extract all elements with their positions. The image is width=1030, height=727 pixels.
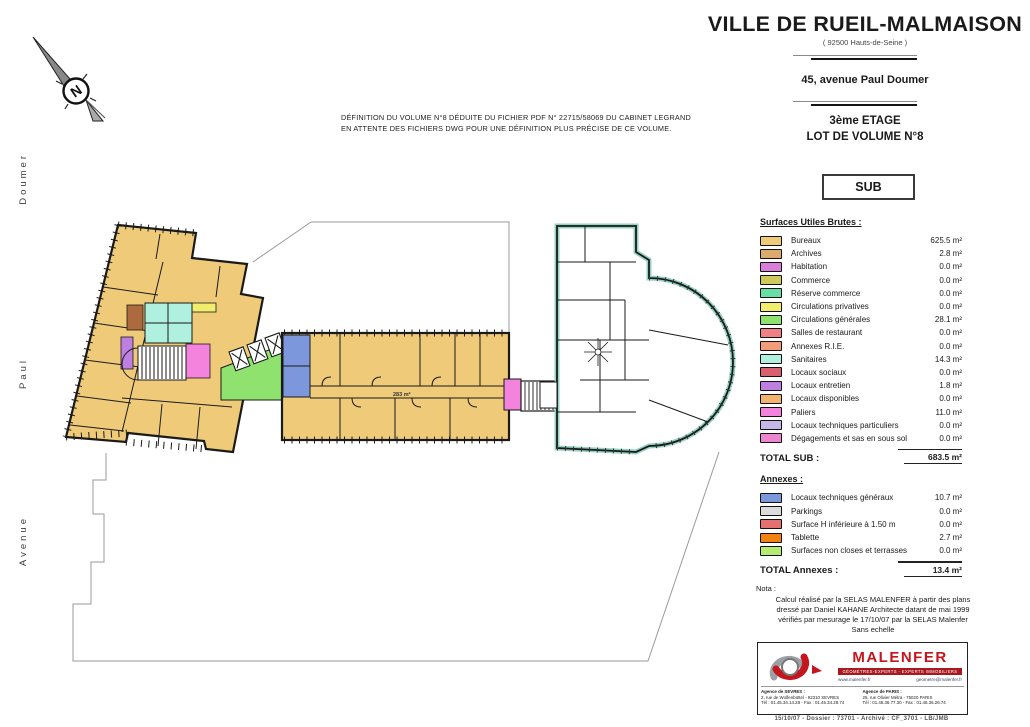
legend-item-value: 0.0 m² <box>904 394 962 403</box>
legend-swatch <box>760 367 782 377</box>
legend-item-label: Surface H inférieure à 1.50 m <box>782 520 904 529</box>
total-sub-label: TOTAL SUB : <box>760 453 904 464</box>
legend-item-value: 0.0 m² <box>904 520 962 529</box>
firm-tagline: GÉOMÈTRES-EXPERTS - EXPERTS IMMOBILIERS <box>838 668 962 675</box>
legend-row: Locaux disponibles 0.0 m² <box>760 392 962 405</box>
total-sub-value: 683.5 m² <box>904 452 962 464</box>
legend-item-value: 0.0 m² <box>907 434 962 443</box>
legend-swatch <box>760 249 782 259</box>
legend-row: Salles de restaurant 0.0 m² <box>760 326 962 339</box>
street-label-doumer: Doumer <box>18 153 36 205</box>
legend-item-value: 2.7 m² <box>904 533 962 542</box>
legend-item-label: Bureaux <box>782 236 904 245</box>
legend-item-label: Habitation <box>782 262 904 271</box>
legend-item-label: Réserve commerce <box>782 289 904 298</box>
legend-swatch <box>760 288 782 298</box>
address-label: 45, avenue Paul Doumer <box>700 74 1030 86</box>
firm-agencies: Agence de SEVRES : 2, rue de Wolfenbütte… <box>761 686 964 706</box>
legend-item-label: Sanitaires <box>782 355 904 364</box>
total-sub-row: TOTAL SUB : 683.5 m² <box>760 452 962 464</box>
legend-row: Habitation 0.0 m² <box>760 260 962 273</box>
nota-line: vérifiés par mesurage le 17/10/07 par la… <box>748 615 998 625</box>
legend-item-label: Commerce <box>782 276 904 285</box>
legend-row: Locaux techniques généraux 10.7 m² <box>760 491 962 504</box>
legend-item-value: 625.5 m² <box>904 236 962 245</box>
palier-room <box>186 344 210 378</box>
legend-item-value: 0.0 m² <box>904 328 962 337</box>
legend-swatch <box>760 407 782 417</box>
legend-item-label: Circulations privatives <box>782 302 904 311</box>
legend-swatch <box>760 302 782 312</box>
legend-item-label: Parkings <box>782 507 904 516</box>
legend-item-value: 0.0 m² <box>904 276 962 285</box>
legend-row: Locaux techniques particuliers 0.0 m² <box>760 419 962 432</box>
legend-swatch <box>760 328 782 338</box>
firm-email[interactable]: geometre@malenfer.fr <box>916 677 962 682</box>
legend-swatch <box>760 275 782 285</box>
annex-items: Locaux techniques généraux 10.7 m² Parki… <box>760 491 962 557</box>
legend-row: Sanitaires 14.3 m² <box>760 353 962 366</box>
nota-line: Sans echelle <box>748 625 998 635</box>
boundary-top-left <box>253 222 311 262</box>
legend-item-label: Locaux entretien <box>782 381 904 390</box>
circulation-privative-room <box>190 303 216 312</box>
legend-items: Bureaux 625.5 m² Archives 2.8 m² Habitat… <box>760 234 962 445</box>
legend-item-value: 28.1 m² <box>904 315 962 324</box>
legend-item-label: Annexes R.I.E. <box>782 342 904 351</box>
legend-item-value: 0.0 m² <box>904 262 962 271</box>
legend-row: Circulations privatives 0.0 m² <box>760 300 962 313</box>
legend-item-value: 0.0 m² <box>904 289 962 298</box>
legend-item-label: Archives <box>782 249 904 258</box>
legend-row: Circulations générales 28.1 m² <box>760 313 962 326</box>
department-label: ( 92500 Hauts-de-Seine ) <box>700 38 1030 47</box>
legend-row: Parkings 0.0 m² <box>760 505 962 518</box>
legend-swatch <box>760 533 782 543</box>
compass: N <box>33 37 105 121</box>
palier-room <box>504 379 521 410</box>
stair-link <box>540 382 557 408</box>
agency-phone: Tél : 01.46.36.77.30 - Fax : 01.46.36.26… <box>863 700 965 706</box>
legend-swatch <box>760 315 782 325</box>
divider <box>793 55 917 60</box>
agency-block: Agence de PARIS : 25, rue Olivier Métra … <box>863 689 965 706</box>
legend-item-label: Locaux techniques généraux <box>782 493 904 502</box>
legend-row: Tablette 2.7 m² <box>760 531 962 544</box>
total-annexes-label: TOTAL Annexes : <box>760 565 904 576</box>
legend-item-value: 0.0 m² <box>904 507 962 516</box>
legend-item-value: 0.0 m² <box>907 546 962 555</box>
right-building <box>540 226 733 452</box>
legend-row: Bureaux 625.5 m² <box>760 234 962 247</box>
legend-swatch <box>760 354 782 364</box>
nota-line: Calcul réalisé par la SELAS MALENFER à p… <box>748 595 998 605</box>
legend-swatch <box>760 381 782 391</box>
volume-definition-line1: DÉFINITION DU VOLUME N°8 DÉDUITE DU FICH… <box>341 112 761 123</box>
legend-item-value: 1.8 m² <box>904 381 962 390</box>
legend-row: Annexes R.I.E. 0.0 m² <box>760 340 962 353</box>
legend-item-value: 11.0 m² <box>904 408 962 417</box>
legend-item-label: Locaux techniques particuliers <box>782 421 904 430</box>
legend-row: Paliers 11.0 m² <box>760 405 962 418</box>
legend-item-value: 0.0 m² <box>904 302 962 311</box>
firm-name: MALENFER <box>836 649 964 666</box>
legend-swatch <box>760 262 782 272</box>
total-rule <box>898 449 962 450</box>
legend-swatch <box>760 433 782 443</box>
sub-type-box: SUB <box>822 174 915 200</box>
archives-room <box>127 305 143 330</box>
legend-swatch <box>760 506 782 516</box>
lot-label: LOT DE VOLUME N°8 <box>700 131 1030 143</box>
nota-label: Nota : <box>756 584 962 593</box>
legend-panel: Surfaces Utiles Brutes : Bureaux 625.5 m… <box>760 217 962 636</box>
corridor-area-label: 283 m² <box>393 391 411 398</box>
left-building <box>66 225 263 452</box>
street-label-paul: Paul <box>18 358 36 389</box>
legend-item-value: 0.0 m² <box>904 368 962 377</box>
boundary-top <box>311 222 509 334</box>
legend-item-label: Paliers <box>782 408 904 417</box>
legend-swatch <box>760 493 782 503</box>
legend-row: Commerce 0.0 m² <box>760 274 962 287</box>
total-rule <box>898 561 962 562</box>
spiral-stair <box>584 338 612 366</box>
street-label-avenue: Avenue <box>18 516 36 566</box>
legend-swatch <box>760 420 782 430</box>
malenfer-logo-icon <box>760 645 834 687</box>
page-title: VILLE DE RUEIL-MALMAISON <box>700 12 1030 37</box>
boundary-main <box>73 452 719 661</box>
volume-definition-note: DÉFINITION DU VOLUME N°8 DÉDUITE DU FICH… <box>341 112 761 134</box>
legend-swatch <box>760 394 782 404</box>
firm-contacts: www.malenfer.fr geometre@malenfer.fr <box>838 677 962 682</box>
file-reference-line: 15/10/07 - Dossier : 73701 - Archivé : C… <box>757 716 966 722</box>
legend-row: Surfaces non closes et terrasses 0.0 m² <box>760 544 962 557</box>
legend-row: Locaux entretien 1.8 m² <box>760 379 962 392</box>
legend-item-label: Locaux disponibles <box>782 394 904 403</box>
total-annexes-value: 13.4 m² <box>904 565 962 577</box>
legend-item-label: Circulations générales <box>782 315 904 324</box>
legend-item-label: Locaux sociaux <box>782 368 904 377</box>
firm-website[interactable]: www.malenfer.fr <box>838 677 871 682</box>
legend-row: Locaux sociaux 0.0 m² <box>760 366 962 379</box>
legend-item-value: 0.0 m² <box>904 421 962 430</box>
legend-swatch <box>760 546 782 556</box>
legend-row: Surface H inférieure à 1.50 m 0.0 m² <box>760 518 962 531</box>
legend-item-label: Tablette <box>782 533 904 542</box>
legend-swatch <box>760 236 782 246</box>
legend-item-label: Dégagements et sas en sous sol <box>782 434 907 443</box>
legend-row: Dégagements et sas en sous sol 0.0 m² <box>760 432 962 445</box>
legend-title: Surfaces Utiles Brutes : <box>760 217 962 227</box>
volume-definition-line2: EN ATTENTE DES FICHIERS DWG POUR UNE DÉF… <box>341 123 761 134</box>
annexes-title: Annexes : <box>760 474 962 484</box>
legend-item-value: 0.0 m² <box>904 342 962 351</box>
middle-building: 283 m² <box>282 333 509 440</box>
agency-phone: Tél : 01.45.34.14.28 - Fax : 01.45.34.28… <box>761 700 863 706</box>
nota-text: Calcul réalisé par la SELAS MALENFER à p… <box>748 595 998 636</box>
legend-item-value: 2.8 m² <box>904 249 962 258</box>
floor-label: 3ème ETAGE <box>700 115 1030 127</box>
firm-stamp: MALENFER GÉOMÈTRES-EXPERTS - EXPERTS IMM… <box>757 642 968 715</box>
agency-block: Agence de SEVRES : 2, rue de Wolfenbütte… <box>761 689 863 706</box>
divider <box>793 101 917 106</box>
legend-swatch <box>760 341 782 351</box>
legend-swatch <box>760 519 782 529</box>
legend-row: Archives 2.8 m² <box>760 247 962 260</box>
legend-item-label: Salles de restaurant <box>782 328 904 337</box>
nota-line: dressé par Daniel KAHANE Architecte data… <box>748 605 998 615</box>
legend-item-value: 10.7 m² <box>904 493 962 502</box>
total-annexes-row: TOTAL Annexes : 13.4 m² <box>760 565 962 577</box>
legend-row: Réserve commerce 0.0 m² <box>760 287 962 300</box>
legend-item-value: 14.3 m² <box>904 355 962 364</box>
right-building-teal-outline <box>557 226 733 452</box>
legend-item-label: Surfaces non closes et terrasses <box>782 546 907 555</box>
